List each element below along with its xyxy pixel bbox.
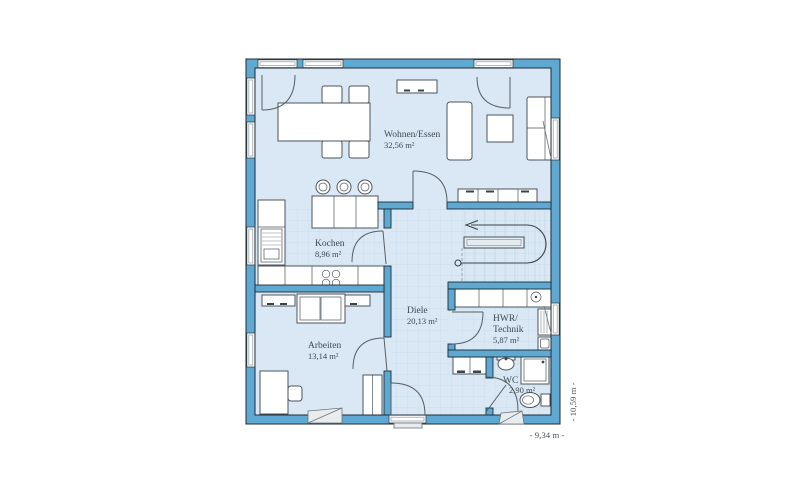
wardrobe	[363, 375, 382, 416]
entrance-door-frame	[389, 415, 426, 423]
room-label-hwr-2: Technik	[493, 325, 524, 335]
desk	[260, 371, 288, 414]
utility-counter	[455, 289, 551, 307]
room-area-arbeiten: 13,14 m²	[308, 351, 339, 361]
washing-machine	[538, 337, 551, 350]
stair-railing	[464, 237, 524, 248]
sofa	[527, 97, 552, 160]
dining-chair	[349, 141, 369, 158]
floor-plan: Wohnen/Essen 32,56 m² Kochen 8,96 m² Die…	[0, 0, 800, 500]
wc-sink	[497, 356, 515, 370]
desk-chair	[288, 386, 302, 401]
window	[247, 333, 255, 367]
window	[247, 122, 255, 158]
terrace-door-frame	[258, 60, 297, 68]
room-label-diele: Diele	[407, 306, 428, 316]
bar-stools	[316, 180, 372, 194]
room-label-wohnen: Wohnen/Essen	[384, 130, 440, 140]
entrance-step	[394, 423, 422, 428]
room-area-kochen: 8,96 m²	[315, 249, 342, 259]
room-label-hwr: HWR/	[493, 314, 518, 324]
dimension-height: - 10,59 m -	[568, 382, 578, 421]
room-label-kochen: Kochen	[315, 239, 345, 249]
dining-chair	[322, 141, 342, 158]
dining-chair	[349, 86, 369, 103]
wall-shelf-left	[262, 295, 295, 306]
hall-cabinet	[453, 357, 487, 374]
window	[551, 118, 559, 160]
kitchen-island	[312, 196, 378, 228]
room-area-hwr: 5,87 m²	[493, 335, 520, 345]
sideboard-stair-wall	[458, 189, 537, 202]
window	[247, 227, 255, 265]
dining-chair	[322, 86, 342, 103]
window	[551, 303, 559, 335]
shower	[521, 356, 549, 384]
window	[247, 78, 255, 115]
room-area-diele: 20,13 m²	[407, 316, 438, 326]
chaise-longue	[447, 102, 472, 160]
dimension-width: - 9,34 m -	[530, 430, 565, 440]
coffee-table	[487, 115, 513, 142]
room-label-arbeiten: Arbeiten	[308, 341, 341, 351]
dining-table	[278, 103, 370, 141]
floor-plan-page: Wohnen/Essen 32,56 m² Kochen 8,96 m² Die…	[0, 0, 800, 500]
heat-pump-unit	[538, 309, 551, 335]
window	[303, 60, 343, 68]
kitchen-counter-left	[258, 200, 285, 265]
room-area-wc: 2,90 m²	[509, 385, 536, 395]
room-area-wohnen: 32,56 m²	[384, 140, 415, 150]
terrace-door-frame	[474, 60, 513, 68]
guest-bed	[297, 294, 345, 323]
wall-shelf-right	[345, 295, 370, 306]
sideboard-dining	[397, 80, 437, 93]
